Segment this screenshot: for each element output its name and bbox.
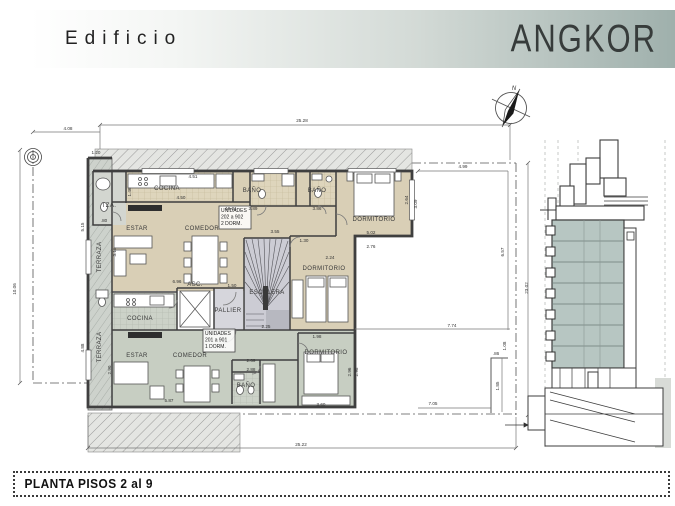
- dimension-label: 2.76: [367, 244, 376, 249]
- dimension-label: 3.55: [271, 229, 280, 234]
- room-label: BAÑO: [237, 382, 256, 389]
- dimension-label: 2.96: [347, 367, 352, 376]
- room-label: TERRAZA: [97, 242, 103, 273]
- room-label: TZA.: [102, 203, 117, 209]
- room-label: PALLIER: [214, 308, 241, 314]
- dimension-label: 25.28: [296, 118, 308, 123]
- dimension-label: 6.96: [173, 279, 182, 284]
- dimension-label: 2.69: [247, 358, 256, 363]
- dimension-label: 3.86: [313, 206, 322, 211]
- room-label: COCINA: [127, 316, 153, 322]
- room-label: ESTAR: [126, 226, 148, 232]
- room-label: DORMITORIO: [303, 266, 346, 272]
- dimension-label: 5.15: [80, 222, 85, 231]
- drawing-sheet: N: [0, 0, 675, 506]
- section-ground-floor: [552, 368, 636, 388]
- section-tower: [546, 220, 636, 368]
- dimension-label: 2.25: [262, 324, 271, 329]
- dimension-label: .86: [493, 351, 500, 356]
- dimension-label: 4.99: [459, 164, 468, 169]
- dimension-label: 3.09: [413, 199, 418, 208]
- dimension-label: 6.57: [500, 247, 505, 256]
- dimension-label: 4.88: [80, 343, 85, 352]
- room-label: COMEDOR: [185, 226, 219, 232]
- room-label: ESTAR: [126, 353, 148, 359]
- dimension-label: 1.50: [228, 283, 237, 288]
- dimension-label: 5.02: [367, 230, 376, 235]
- dimension-label: 1.46: [127, 187, 132, 196]
- dimension-label: 1.85: [495, 381, 500, 390]
- dimension-label: 2.64: [404, 195, 409, 204]
- room-label: TERRAZA: [97, 332, 103, 363]
- dimension-label: 1.30: [300, 238, 309, 243]
- dimension-label: 7.74: [448, 323, 457, 328]
- title-block: PLANTA PISOS 2 al 9: [13, 471, 670, 497]
- building-section: [505, 140, 671, 448]
- dimension-label: 3.60: [317, 402, 326, 407]
- dimension-label: 2.24: [326, 255, 335, 260]
- dimension-label: 7.05: [429, 401, 438, 406]
- room-label: COMEDOR: [173, 353, 207, 359]
- north-label: N: [512, 86, 517, 92]
- dimension-label: 4.08: [64, 126, 73, 131]
- room-label: BAÑO: [243, 187, 262, 194]
- dimension-label: 1.98: [313, 334, 322, 339]
- dimension-label: 25.22: [295, 442, 307, 447]
- dimension-label: 2.90: [107, 365, 112, 374]
- section-basement: [505, 388, 663, 446]
- room-label: BAÑO: [308, 187, 327, 194]
- elevator: [180, 291, 210, 327]
- section-roof: [540, 140, 648, 220]
- dimension-label: 2.89: [249, 206, 258, 211]
- room-label: DORMITORIO: [353, 217, 396, 223]
- dimension-label: 2.98: [354, 367, 359, 376]
- dimension-label: 3.18: [112, 247, 117, 256]
- room-label: ASC.: [187, 282, 203, 288]
- room-label: ESCALERA: [249, 290, 284, 296]
- north-compass: N: [483, 80, 539, 136]
- dimension-label: 4.51: [189, 174, 198, 179]
- dimension-label: 19.01: [225, 206, 237, 211]
- dimension-label: 2.88: [247, 367, 256, 372]
- dimension-label: 10.06: [12, 283, 17, 295]
- dimension-label: .80: [101, 218, 108, 223]
- dimension-label: 1.20: [92, 150, 101, 155]
- room-label: COCINA: [154, 186, 180, 192]
- dimension-label: 23.02: [524, 282, 529, 294]
- room-label: DORMITORIO: [305, 350, 348, 356]
- sheet-title: PLANTA PISOS 2 al 9: [15, 477, 153, 491]
- dimension-label: 4.50: [177, 195, 186, 200]
- dimension-label: 1.08: [502, 341, 507, 350]
- dimension-label: 5.87: [165, 398, 174, 403]
